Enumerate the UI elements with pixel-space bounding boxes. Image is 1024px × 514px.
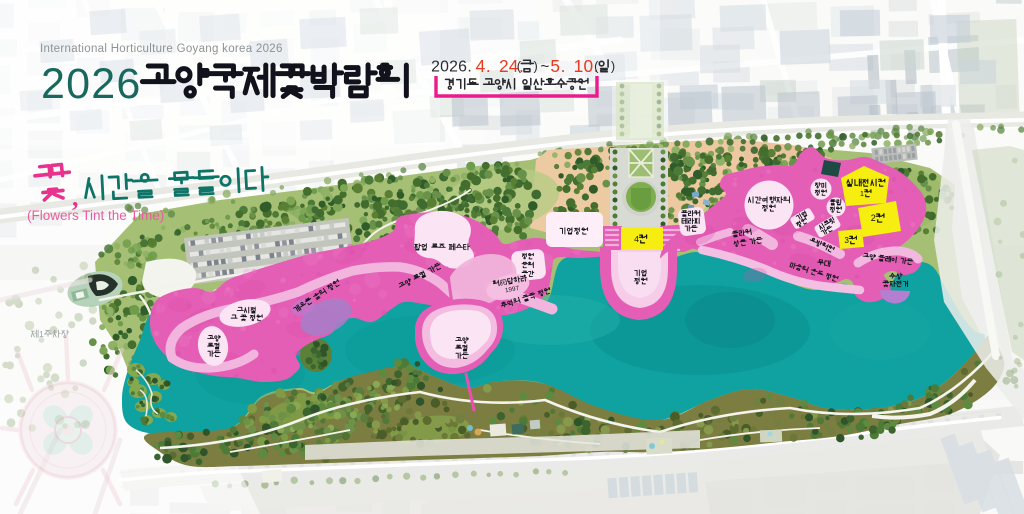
svg-text:.: . — [561, 56, 566, 76]
svg-text:4: 4 — [476, 56, 486, 76]
svg-text:~: ~ — [540, 58, 549, 75]
svg-text:0: 0 — [584, 56, 594, 76]
svg-text:1: 1 — [39, 330, 44, 339]
svg-text:(Flowers Tint the Time): (Flowers Tint the Time) — [27, 208, 164, 223]
svg-text:2026: 2026 — [41, 60, 141, 108]
svg-text:1: 1 — [574, 56, 584, 76]
svg-text:3: 3 — [844, 236, 849, 245]
svg-text:2: 2 — [499, 56, 509, 76]
svg-text:6: 6 — [458, 59, 467, 76]
svg-text:2: 2 — [449, 59, 458, 76]
svg-text:): ) — [534, 59, 538, 74]
svg-text:1: 1 — [860, 189, 864, 198]
svg-text:2: 2 — [871, 213, 876, 223]
svg-text:(: ( — [594, 59, 599, 74]
svg-text:5: 5 — [550, 56, 560, 76]
svg-text:): ) — [611, 59, 615, 74]
svg-text:0: 0 — [440, 59, 449, 76]
svg-text:2: 2 — [431, 59, 440, 76]
svg-text:.: . — [486, 56, 491, 76]
svg-text:International Horticulture Goy: International Horticulture Goyang korea … — [40, 43, 283, 55]
svg-text:4: 4 — [634, 234, 639, 244]
svg-text:.: . — [467, 59, 471, 76]
svg-text:(: ( — [517, 59, 522, 74]
